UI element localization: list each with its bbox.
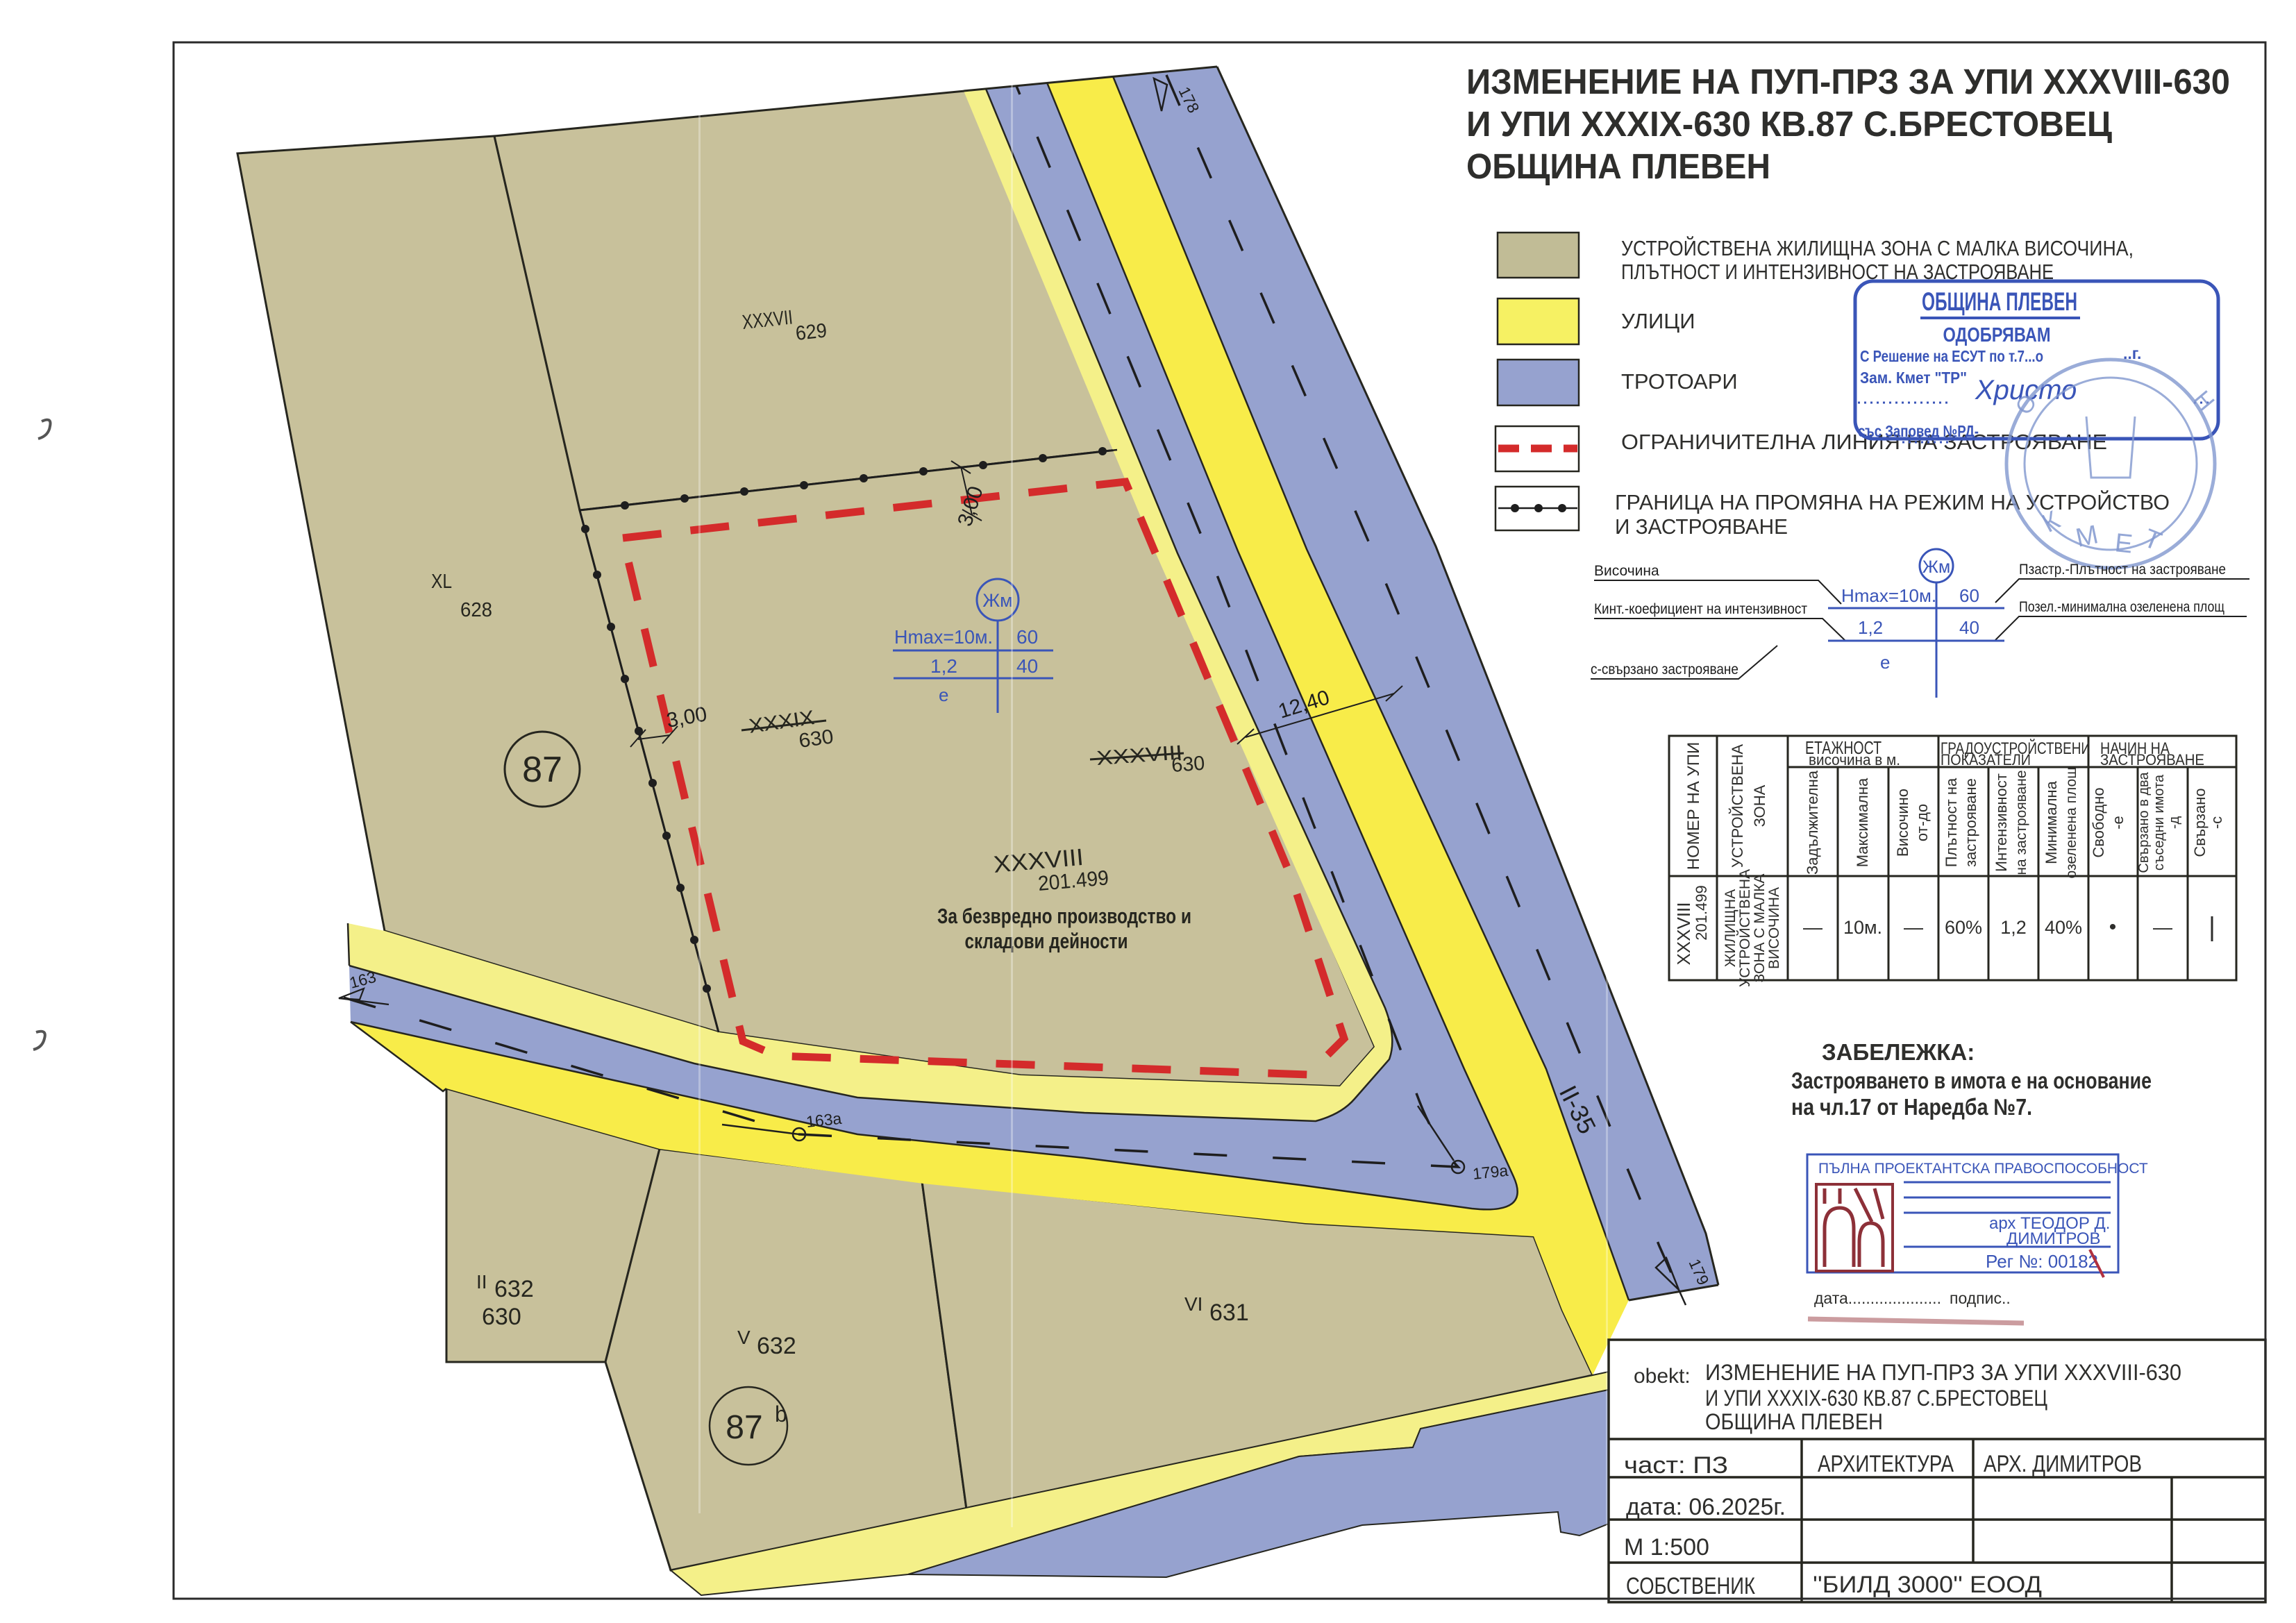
svg-text:УСТРОЙСТВЕНА ЖИЛИЩНА ЗОНА С МА: УСТРОЙСТВЕНА ЖИЛИЩНА ЗОНА С МАЛКА ВИСОЧИ… <box>1621 235 2134 260</box>
svg-text:Задължителна: Задължителна <box>1804 770 1821 875</box>
svg-text:II: II <box>476 1271 487 1293</box>
svg-text:е: е <box>939 684 948 705</box>
svg-text:със Заповед №РД-: със Заповед №РД- <box>1858 422 1979 440</box>
svg-text:За безвредно производство и: За безвредно производство и <box>937 904 1191 928</box>
svg-text:V: V <box>737 1327 751 1348</box>
svg-text:С Решение на ЕСУТ по т.7...о: С Решение на ЕСУТ по т.7...о <box>1860 347 2043 365</box>
svg-text:632: 632 <box>757 1333 796 1359</box>
svg-text:складови дейности: складови дейности <box>965 929 1128 953</box>
svg-text:Позел.-минимална озеленена пло: Позел.-минимална озеленена площ <box>2019 599 2224 615</box>
svg-text:ГРАНИЦА НА ПРОМЯНА НА РЕЖИМ НА: ГРАНИЦА НА ПРОМЯНА НА РЕЖИМ НА УСТРОЙСТВ… <box>1615 489 2170 514</box>
svg-text:И ЗАСТРОЯВАНЕ: И ЗАСТРОЯВАНЕ <box>1615 514 1788 539</box>
svg-text:Свободно: Свободно <box>2090 787 2107 857</box>
svg-text:с-свързано застрояване: с-свързано застрояване <box>1591 662 1738 678</box>
svg-text:Hmax=10м.: Hmax=10м. <box>1841 585 1936 606</box>
svg-text:87: 87 <box>522 750 562 790</box>
svg-text:-е: -е <box>2109 816 2127 830</box>
svg-text:632: 632 <box>494 1276 534 1302</box>
svg-text:УСТРОЙСТВЕНА: УСТРОЙСТВЕНА <box>1736 869 1753 987</box>
svg-text:VI: VI <box>1184 1293 1203 1315</box>
svg-text:УСТРОЙСТВЕНА: УСТРОЙСТВЕНА <box>1729 744 1746 868</box>
svg-text:АРХИТЕКТУРА: АРХИТЕКТУРА <box>1818 1451 1954 1477</box>
svg-text:съседни имота: съседни имота <box>2152 774 2167 871</box>
svg-text:ЗОНА С МАЛКА: ЗОНА С МАЛКА <box>1752 874 1768 983</box>
svg-text:озеленена площ: озеленена площ <box>2063 767 2079 879</box>
svg-text:60: 60 <box>1959 585 1979 606</box>
svg-text:ДИМИТРОВ: ДИМИТРОВ <box>2006 1229 2101 1248</box>
svg-text:-д: -д <box>2167 816 2182 830</box>
svg-text:И УПИ XXXIX-630 КВ.87 С.БРЕСТО: И УПИ XXXIX-630 КВ.87 С.БРЕСТОВЕЦ <box>1705 1386 2047 1411</box>
svg-text:-с: -с <box>2208 816 2225 829</box>
svg-text:Hmax=10м.: Hmax=10м. <box>894 626 993 648</box>
svg-text:застрояване: застрояване <box>1962 778 1979 867</box>
svg-text:ЗОНА: ЗОНА <box>1751 784 1768 827</box>
svg-text:Застрояването в имота е на осн: Застрояването в имота е на основание <box>1791 1068 2152 1093</box>
svg-text:ЖИЛИЩНА: ЖИЛИЩНА <box>1723 889 1738 967</box>
svg-text:от-до: от-до <box>1913 804 1931 841</box>
svg-text:629: 629 <box>794 319 828 345</box>
svg-text:60: 60 <box>1016 626 1038 648</box>
svg-text:дата: 06.2025г.: дата: 06.2025г. <box>1626 1494 1786 1520</box>
svg-text:ОДОБРЯВАМ: ОДОБРЯВАМ <box>1943 324 2051 346</box>
svg-text:628: 628 <box>460 599 492 621</box>
svg-text:—: — <box>1803 916 1822 938</box>
svg-text:подпис..: подпис.. <box>1950 1289 2011 1307</box>
svg-text:Свързано в два: Свързано в два <box>2136 772 2152 873</box>
svg-text:•: • <box>2109 916 2117 939</box>
svg-text:1,2: 1,2 <box>2000 917 2027 938</box>
svg-text:631: 631 <box>1209 1300 1249 1326</box>
svg-text:1,2: 1,2 <box>930 655 957 677</box>
svg-text:—: — <box>1904 916 1923 938</box>
svg-text:ЗАБЕЛЕЖКА:: ЗАБЕЛЕЖКА: <box>1822 1039 1975 1065</box>
svg-text:ПЪЛНА ПРОЕКТАНТСКА ПРАВОСПОСОБ: ПЪЛНА ПРОЕКТАНТСКА ПРАВОСПОСОБНОСТ <box>1818 1161 2148 1177</box>
svg-text:40%: 40% <box>2045 917 2082 938</box>
svg-text:ОБЩИНА ПЛЕВЕН: ОБЩИНА ПЛЕВЕН <box>1466 146 1770 186</box>
svg-text:част: ПЗ: част: ПЗ <box>1624 1452 1728 1479</box>
svg-text:Свързано: Свързано <box>2191 788 2209 857</box>
svg-text:Е: Е <box>2113 528 2134 559</box>
svg-text:obekt:: obekt: <box>1634 1365 1691 1388</box>
svg-text:е: е <box>1880 652 1890 673</box>
svg-text:дата.....................: дата..................... <box>1814 1289 1941 1307</box>
svg-text:Плътност на: Плътност на <box>1943 777 1960 867</box>
svg-text:10м.: 10м. <box>1843 917 1882 938</box>
svg-text:XL: XL <box>431 571 452 593</box>
svg-text:АРХ. ДИМИТРОВ: АРХ. ДИМИТРОВ <box>1984 1451 2142 1477</box>
svg-text:УЛИЦИ: УЛИЦИ <box>1621 309 1695 333</box>
svg-text:Рег №: 00182: Рег №: 00182 <box>1986 1251 2098 1272</box>
svg-text:1,2: 1,2 <box>1858 617 1883 638</box>
svg-text:163a: 163a <box>805 1109 843 1131</box>
svg-text:b: b <box>775 1402 787 1427</box>
svg-text:Кинт.-коефициент на интензивно: Кинт.-коефициент на интензивност <box>1594 601 1807 617</box>
svg-text:ЗАСТРОЯВАНЕ: ЗАСТРОЯВАНЕ <box>2100 751 2204 768</box>
svg-text:630: 630 <box>1171 752 1205 777</box>
svg-text:630: 630 <box>482 1304 521 1330</box>
svg-text:40: 40 <box>1959 617 1979 638</box>
svg-text:ТРОТОАРИ: ТРОТОАРИ <box>1621 369 1738 394</box>
svg-text:височина в м.: височина в м. <box>1809 751 1900 768</box>
svg-text:Интензивност: Интензивност <box>1993 773 2010 872</box>
svg-text:Височина: Височина <box>1594 563 1659 579</box>
svg-text:40: 40 <box>1016 655 1038 677</box>
svg-text:Минимална: Минимална <box>2043 780 2060 864</box>
svg-text:ОБЩИНА ПЛЕВЕН: ОБЩИНА ПЛЕВЕН <box>1705 1409 1883 1434</box>
svg-text:Пзастр.-Плътност на застрояван: Пзастр.-Плътност на застрояване <box>2019 562 2226 578</box>
svg-text:60%: 60% <box>1945 917 1982 938</box>
svg-text:Жм: Жм <box>982 590 1013 611</box>
svg-text:СОБСТВЕНИК: СОБСТВЕНИК <box>1626 1573 1755 1599</box>
svg-text:М 1:500: М 1:500 <box>1624 1534 1709 1561</box>
svg-text:на застрояване: на застрояване <box>2013 770 2029 875</box>
svg-text:Максимална: Максимална <box>1854 777 1871 867</box>
svg-text:179a: 179a <box>1472 1161 1509 1183</box>
svg-text:ОБЩИНА ПЛЕВЕН: ОБЩИНА ПЛЕВЕН <box>1922 287 2077 316</box>
svg-text:НОМЕР НА УПИ: НОМЕР НА УПИ <box>1684 742 1703 870</box>
svg-text:XXXVIII: XXXVIII <box>1673 902 1694 965</box>
svg-text:ПОКАЗАТЕЛИ: ПОКАЗАТЕЛИ <box>1941 751 2031 768</box>
svg-text:И УПИ XXXIX-630 КВ.87 С.БРЕСТО: И УПИ XXXIX-630 КВ.87 С.БРЕСТОВЕЦ <box>1466 104 2112 144</box>
svg-text:на чл.17 от Наредба №7.: на чл.17 от Наредба №7. <box>1791 1094 2032 1120</box>
svg-text:ИЗМЕНЕНИЕ НА ПУП-ПРЗ ЗА УПИ XX: ИЗМЕНЕНИЕ НА ПУП-ПРЗ ЗА УПИ XXXVIII-630 <box>1466 62 2230 101</box>
svg-text:Височино: Височино <box>1894 789 1911 857</box>
svg-text:Зам. Кмет "ТР": Зам. Кмет "ТР" <box>1860 369 1967 387</box>
svg-text:—: — <box>2153 916 2172 938</box>
svg-text:Жм: Жм <box>1922 557 1950 577</box>
svg-text:201.499: 201.499 <box>1693 885 1710 941</box>
svg-text:''БИЛД 3000'' ЕООД: ''БИЛД 3000'' ЕООД <box>1813 1572 2042 1598</box>
svg-text:ИЗМЕНЕНИЕ НА ПУП-ПРЗ ЗА УПИ XX: ИЗМЕНЕНИЕ НА ПУП-ПРЗ ЗА УПИ XXXVIII-630 <box>1705 1360 2181 1385</box>
svg-text:ВИСОЧИНА: ВИСОЧИНА <box>1766 887 1782 969</box>
svg-text:87: 87 <box>726 1409 762 1446</box>
